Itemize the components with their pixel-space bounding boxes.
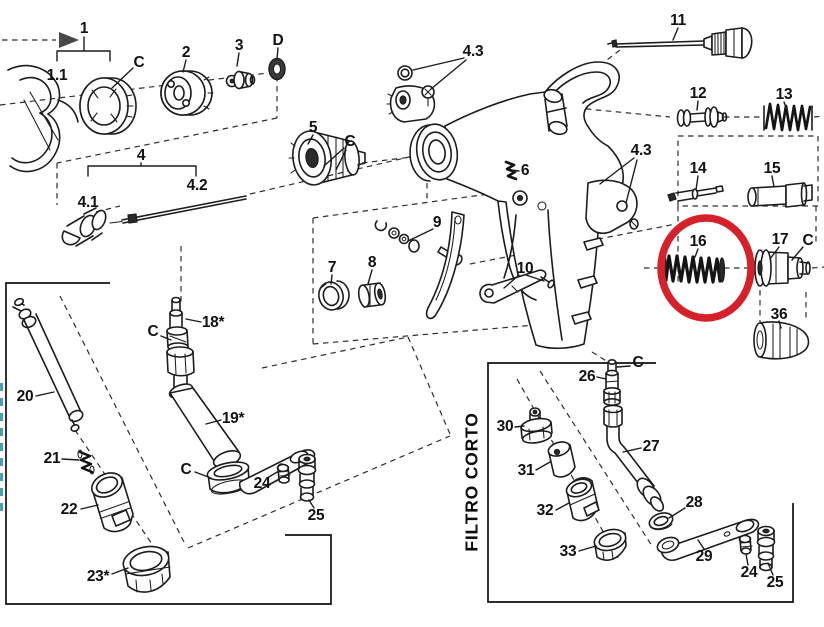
cropped-left-margin-text <box>0 383 3 513</box>
part-22-filter-housing <box>88 468 133 531</box>
part-32-filter-body <box>564 476 599 520</box>
part-14-rod <box>668 186 723 201</box>
part-28-nut <box>647 510 674 532</box>
part-15-valve-body <box>748 183 812 207</box>
part-30-nut <box>520 408 552 445</box>
direction-arrow-icon <box>59 32 79 48</box>
part-1-1-fork <box>8 66 78 172</box>
part-25-fitting-right <box>758 527 775 571</box>
part-13-spring <box>764 104 812 130</box>
part-c-ring-nut <box>80 78 136 134</box>
part-7-ring <box>316 279 349 312</box>
part-4-3-screw-set-top <box>387 66 434 122</box>
part-21-spring <box>78 450 94 474</box>
part-18-valve-stem <box>167 298 188 352</box>
parts-diagram: FILTRO CORTO 11.1C23D44.14.25C4.36789101… <box>0 0 824 627</box>
part-24-screw-right <box>740 536 753 555</box>
part-d-seal <box>269 59 285 80</box>
part-5-packing-assembly <box>289 129 365 188</box>
part-17-cartridge <box>755 250 810 286</box>
section-label-filtro-corto: FILTRO CORTO <box>462 412 483 551</box>
part-3-fluid-nozzle <box>227 72 255 89</box>
part-23-cap-nut <box>121 543 172 593</box>
part-9-trigger-assembly <box>375 212 464 318</box>
part-20-filter-tube <box>13 297 84 432</box>
part-16-spring <box>662 255 725 282</box>
part-11-needle-rod <box>608 28 752 58</box>
part-4-1-tip <box>62 208 108 246</box>
part-12-valve-spindle <box>678 107 727 127</box>
bracket-arm-left <box>240 449 316 501</box>
part-33-cap-nut <box>592 526 628 560</box>
part-8-nut <box>357 282 387 307</box>
diagram-artwork <box>0 0 824 627</box>
part-31-cylinder <box>547 439 575 477</box>
part-27-tube <box>604 406 666 514</box>
part-19-suction-tube <box>167 347 243 470</box>
part-4-2-needle <box>110 196 246 223</box>
part-2-air-cap <box>161 71 213 115</box>
